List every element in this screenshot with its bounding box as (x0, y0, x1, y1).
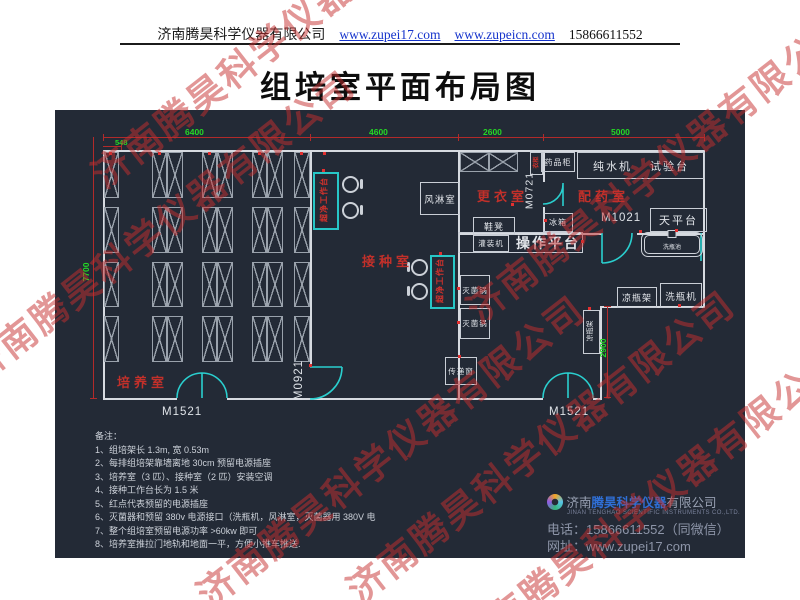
outlet-dot (457, 321, 460, 324)
outlet-dot (323, 152, 326, 155)
sink-label: 洗瓶池 (642, 242, 702, 251)
dim-tick (543, 134, 544, 141)
page-title: 组培室平面布局图 (0, 62, 800, 107)
medicine-cabinet-label: 药品柜 (545, 157, 572, 168)
medicine-cabinet: 药品柜 (541, 152, 575, 172)
dim-5000: 5000 (611, 127, 630, 137)
clean-bench-2-label: 超净工作台 (436, 257, 445, 305)
notes-title: 备注： (95, 430, 376, 444)
door-label-m0721: M0721 (524, 169, 535, 213)
footer-company-prefix: 济南 (566, 496, 591, 510)
shoe-bench-label: 鞋凳 (484, 220, 504, 233)
outlet-dot (439, 252, 442, 255)
page: 济南腾昊科学仪器有限公司 www.zupei17.com www.zupeicn… (0, 0, 800, 600)
room-label-inoculation: 接种室 (362, 251, 413, 270)
note-item: 1、组培架长 1.3m, 宽 0.53m (95, 444, 376, 458)
air-shower-room: 风淋室 (420, 182, 460, 215)
header-divider (120, 43, 680, 45)
outlet-dot (588, 307, 591, 310)
balance-table: 天平台 (650, 208, 707, 232)
stool (411, 283, 428, 300)
header: 济南腾昊科学仪器有限公司 www.zupei17.com www.zupeicn… (0, 24, 800, 44)
balance-table-label: 天平台 (659, 212, 698, 228)
header-link-zupei17[interactable]: www.zupei17.com (339, 27, 440, 43)
stool (342, 202, 359, 219)
outlet-dot (322, 169, 325, 172)
clean-bench-1-label: 超净工作台 (320, 174, 329, 226)
filling-machine: 灌装机 (473, 235, 509, 252)
outlet-dot (675, 229, 678, 232)
outlet-dot (309, 364, 312, 367)
air-shower-label: 风淋室 (424, 192, 456, 206)
filling-machine-label: 灌装机 (478, 238, 504, 249)
dim-line-top (103, 137, 705, 138)
stool (342, 176, 359, 193)
company-logo-icon (547, 494, 563, 510)
bottle-washing-sink: 洗瓶池 (641, 232, 703, 257)
door-label-m0921: M0921 (293, 350, 305, 410)
dim-tick (604, 306, 611, 307)
dim-tick (458, 134, 459, 141)
header-phone: 15866611552 (569, 27, 643, 43)
outlet-dot (639, 230, 642, 233)
outlet-dot (511, 203, 514, 206)
outlet-dot (300, 152, 303, 155)
header-link-zupeicn[interactable]: www.zupeicn.com (455, 27, 555, 43)
dim-2600: 2600 (483, 127, 502, 137)
room-label-culture: 培养室 (117, 372, 168, 391)
room-label-changing: 更衣室 (477, 186, 528, 205)
stool (411, 259, 428, 276)
cooling-rack-h: 凉瓶架 (617, 287, 657, 308)
dim-4600: 4600 (369, 127, 388, 137)
door-label-m1521-left: M1521 (162, 406, 202, 418)
dim-tick (90, 398, 97, 399)
